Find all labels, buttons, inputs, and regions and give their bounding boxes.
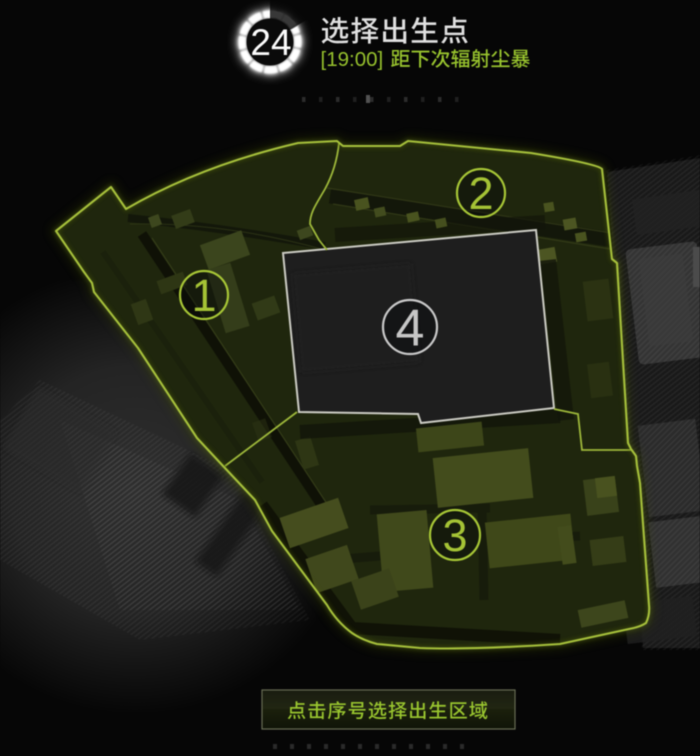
svg-text:24: 24: [250, 22, 291, 63]
svg-text:2: 2: [468, 168, 493, 219]
svg-text:3: 3: [442, 510, 467, 561]
svg-text:[19:00]: [19:00]: [321, 48, 384, 71]
svg-text:4: 4: [396, 299, 425, 357]
svg-text:1: 1: [191, 270, 216, 321]
